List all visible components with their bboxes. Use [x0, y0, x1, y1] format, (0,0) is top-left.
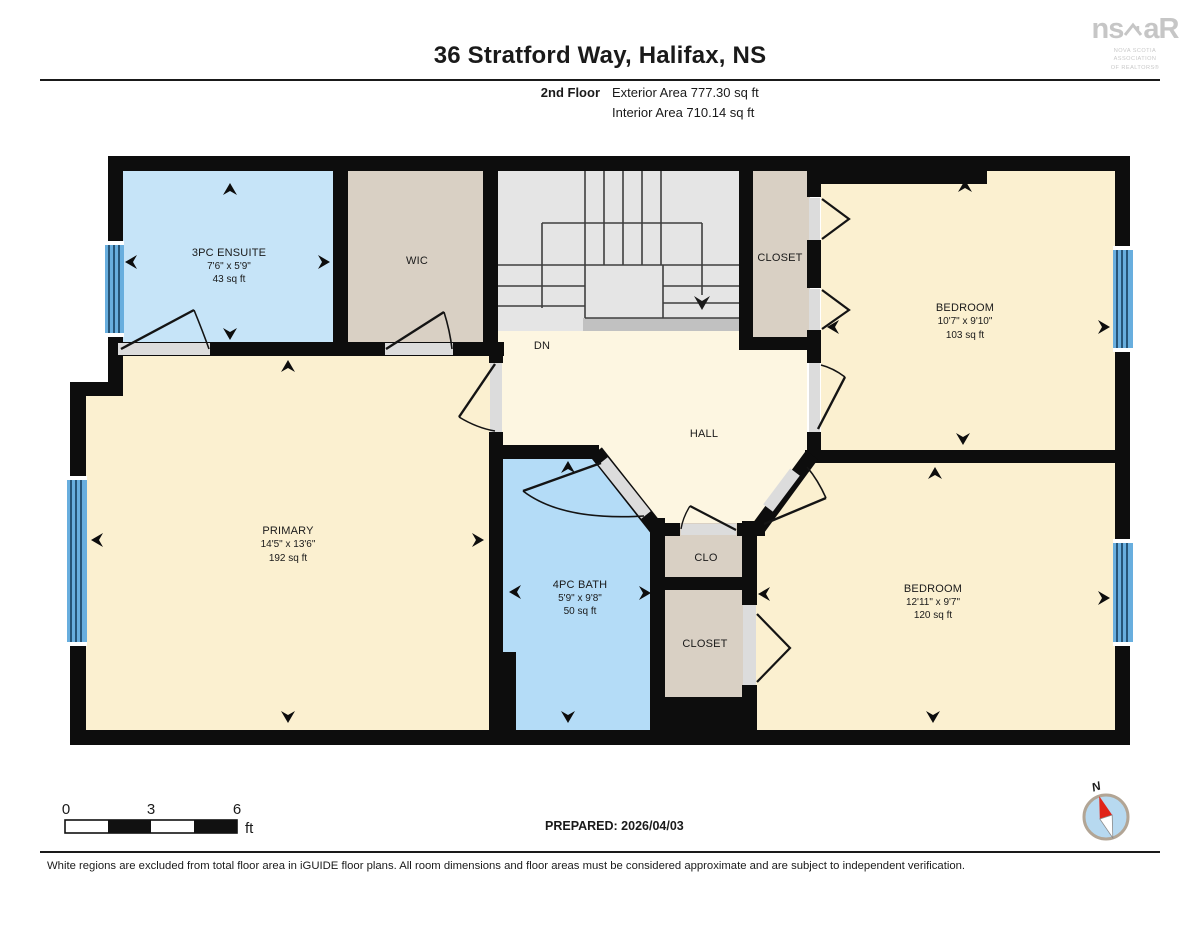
scale-tick-0: 0 — [62, 801, 70, 818]
label-hall: HALL — [690, 428, 718, 440]
scale-tick-3: 3 — [147, 801, 155, 818]
label-bedroom-top-area: 103 sq ft — [946, 330, 985, 341]
room-bedroom-bottom — [750, 452, 1116, 738]
compass-north-label: N — [1090, 778, 1103, 794]
door-opening-closet-top-1 — [809, 198, 820, 240]
compass-icon: N — [1084, 778, 1128, 840]
footer-divider — [40, 851, 1160, 853]
label-bath-area: 50 sq ft — [564, 606, 597, 617]
door-opening-closet-bottom — [743, 605, 756, 685]
label-bedroom-bottom-name: BEDROOM — [904, 583, 962, 595]
scale-tick-6: 6 — [233, 801, 241, 818]
door-opening-bedroom-top — [809, 363, 820, 432]
window-bedroom-top — [1113, 246, 1133, 352]
label-wic: WIC — [406, 255, 428, 267]
label-closet-top: CLOSET — [757, 252, 802, 264]
label-bath-name: 4PC BATH — [553, 579, 608, 591]
disclaimer-text: White regions are excluded from total fl… — [47, 860, 1167, 872]
window-primary — [67, 476, 87, 646]
label-ensuite-area: 43 sq ft — [213, 274, 246, 285]
label-primary-area: 192 sq ft — [269, 553, 308, 564]
window-ensuite — [105, 241, 124, 337]
door-opening-primary — [490, 363, 502, 432]
label-bedroom-top-dims: 10'7" x 9'10" — [938, 316, 993, 327]
label-bedroom-bottom-dims: 12'11" x 9'7" — [906, 597, 961, 608]
label-ensuite-dims: 7'6" x 5'9" — [207, 261, 251, 272]
label-stairs-dn: DN — [534, 340, 550, 352]
label-closet-bottom: CLOSET — [682, 638, 727, 650]
label-bath-dims: 5'9" x 9'8" — [558, 593, 602, 604]
floorplan-svg: 3PC ENSUITE 7'6" x 5'9" 43 sq ft WIC DN … — [0, 0, 1200, 927]
window-bedroom-bottom — [1113, 539, 1133, 646]
label-bedroom-bottom-area: 120 sq ft — [914, 610, 953, 621]
door-opening-ensuite — [118, 343, 210, 355]
room-stairwell — [497, 171, 743, 331]
prepared-date: PREPARED: 2026/04/03 — [545, 819, 684, 833]
label-bedroom-top-name: BEDROOM — [936, 302, 994, 314]
scale-bar: 0 3 6 ft — [62, 801, 254, 837]
label-primary-name: PRIMARY — [262, 525, 314, 537]
floorplan-page: 36 Stratford Way, Halifax, NS ns aR NOVA… — [0, 0, 1200, 927]
scale-unit: ft — [245, 820, 254, 837]
door-opening-closet-top-2 — [809, 289, 820, 330]
door-opening-wic — [385, 343, 453, 355]
label-ensuite-name: 3PC ENSUITE — [192, 247, 266, 259]
label-primary-dims: 14'5" x 13'6" — [261, 539, 316, 550]
label-clo: CLO — [694, 552, 717, 564]
